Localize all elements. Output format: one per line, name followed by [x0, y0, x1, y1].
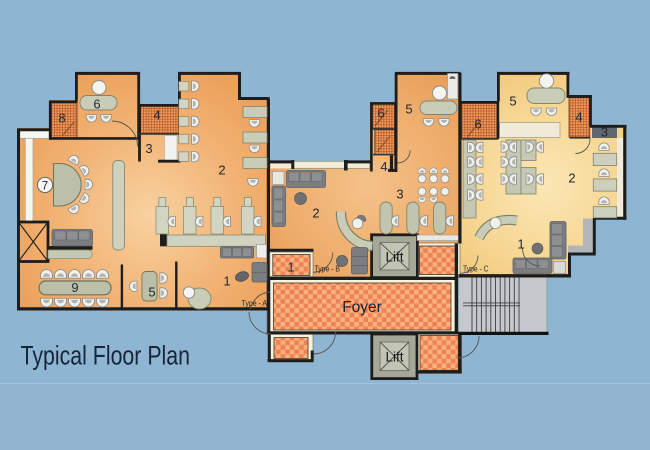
svg-text:4: 4	[575, 110, 582, 125]
svg-text:6: 6	[377, 106, 384, 121]
svg-text:6: 6	[93, 97, 100, 112]
svg-text:Type - C: Type - C	[463, 265, 489, 274]
svg-text:6: 6	[474, 117, 481, 132]
svg-text:1: 1	[287, 260, 294, 275]
svg-text:4: 4	[153, 108, 160, 123]
svg-text:Typical Floor Plan: Typical Floor Plan	[21, 341, 191, 371]
svg-text:Type - A: Type - A	[242, 299, 268, 308]
svg-text:Lift: Lift	[385, 350, 403, 365]
svg-text:5: 5	[509, 94, 516, 109]
svg-text:1: 1	[517, 237, 524, 252]
svg-text:5: 5	[148, 285, 155, 300]
svg-text:4: 4	[380, 159, 387, 174]
svg-text:8: 8	[58, 111, 65, 126]
svg-text:Foyer: Foyer	[342, 299, 382, 316]
svg-text:7: 7	[42, 181, 48, 193]
svg-text:1: 1	[223, 274, 230, 289]
svg-text:Type - B: Type - B	[315, 265, 341, 274]
svg-text:2: 2	[312, 206, 319, 221]
svg-text:9: 9	[71, 280, 78, 295]
svg-text:3: 3	[396, 187, 403, 202]
svg-text:2: 2	[568, 171, 575, 186]
svg-text:2: 2	[218, 163, 225, 178]
svg-text:Lift: Lift	[385, 250, 403, 265]
svg-text:5: 5	[405, 102, 412, 117]
svg-text:3: 3	[145, 141, 152, 156]
svg-text:3: 3	[601, 125, 608, 140]
